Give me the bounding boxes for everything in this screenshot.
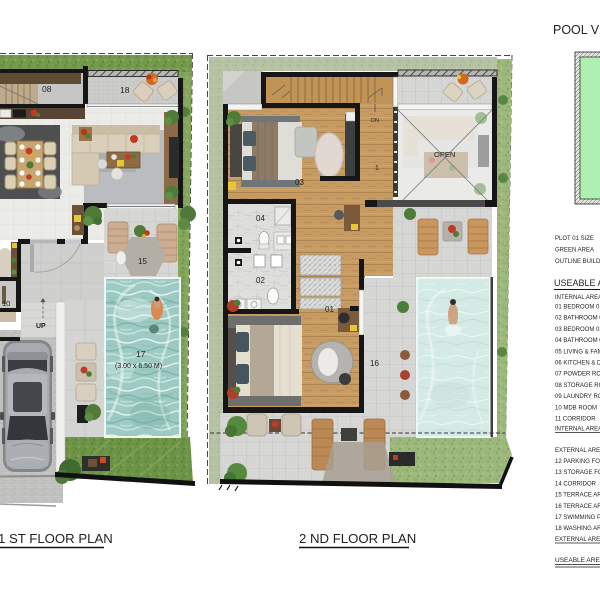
- svg-text:GREEN AREA: GREEN AREA: [555, 248, 594, 254]
- svg-text:17: 17: [136, 349, 146, 359]
- svg-text:09 LAUNDRY ROOM: 09 LAUNDRY ROOM: [555, 394, 600, 400]
- svg-text:OPEN: OPEN: [434, 150, 455, 159]
- svg-text:06 KITCHEN & DINING: 06 KITCHEN & DINING: [555, 361, 600, 367]
- svg-text:INTERNAL AREA: INTERNAL AREA: [555, 295, 600, 301]
- svg-text:DN: DN: [371, 118, 379, 124]
- svg-text:13 STORAGE FOR: 13 STORAGE FOR: [555, 470, 600, 476]
- svg-text:16 TERRACE AREA: 16 TERRACE AREA: [555, 504, 600, 510]
- svg-text:18 WASHING AREA: 18 WASHING AREA: [555, 526, 600, 532]
- svg-text:1: 1: [375, 165, 379, 172]
- svg-text:17 SWIMMING POOL: 17 SWIMMING POOL: [555, 515, 600, 521]
- svg-text:UP: UP: [36, 323, 46, 330]
- svg-text:02: 02: [256, 276, 265, 285]
- svg-text:INTERNAL AREA: INTERNAL AREA: [555, 427, 600, 433]
- svg-text:16: 16: [370, 359, 379, 368]
- svg-text:02 BATHROOM 01: 02 BATHROOM 01: [555, 316, 600, 322]
- svg-text:EXTERNAL AREA: EXTERNAL AREA: [555, 537, 600, 543]
- svg-text:12 PARKING FOR 1: 12 PARKING FOR 1: [555, 459, 600, 465]
- svg-text:03: 03: [295, 178, 304, 187]
- svg-text:04: 04: [256, 214, 265, 223]
- svg-text:03 BEDROOM 02: 03 BEDROOM 02: [555, 327, 600, 333]
- svg-text:POOL VILLA: POOL VILLA: [553, 23, 600, 37]
- svg-text:18: 18: [120, 85, 130, 95]
- svg-text:14 CORRIDOR: 14 CORRIDOR: [555, 481, 597, 487]
- svg-text:01 BEDROOM 01: 01 BEDROOM 01: [555, 305, 600, 311]
- svg-text:04 BATHROOM 02: 04 BATHROOM 02: [555, 338, 600, 344]
- svg-text:11 CORRIDOR: 11 CORRIDOR: [555, 417, 596, 423]
- svg-text:(3.00 x 6.50 M): (3.00 x 6.50 M): [115, 363, 162, 370]
- svg-text:08 STORAGE ROOM: 08 STORAGE ROOM: [555, 383, 600, 389]
- svg-text:EXTERNAL AREA: EXTERNAL AREA: [555, 448, 600, 454]
- svg-text:05 LIVING & FAMILY: 05 LIVING & FAMILY: [555, 349, 600, 355]
- svg-text:15 TERRACE AREA: 15 TERRACE AREA: [555, 493, 600, 499]
- svg-text:2 ND FLOOR PLAN: 2 ND FLOOR PLAN: [299, 531, 416, 546]
- svg-text:15: 15: [138, 257, 147, 266]
- svg-text:USEABLE AREA: USEABLE AREA: [554, 278, 600, 288]
- svg-text:1 ST FLOOR PLAN: 1 ST FLOOR PLAN: [0, 531, 113, 546]
- svg-text:08: 08: [42, 84, 52, 94]
- svg-text:PLOT 01 SIZE: PLOT 01 SIZE: [555, 236, 594, 242]
- svg-text:01: 01: [325, 305, 334, 314]
- svg-text:10: 10: [2, 299, 10, 308]
- svg-text:07 POWDER ROOM: 07 POWDER ROOM: [555, 372, 600, 378]
- svg-text:10 MDB ROOM: 10 MDB ROOM: [555, 405, 597, 411]
- svg-text:OUTLINE BUILDING: OUTLINE BUILDING: [555, 259, 600, 265]
- svg-text:USEABLE AREA TOTAL: USEABLE AREA TOTAL: [555, 557, 600, 564]
